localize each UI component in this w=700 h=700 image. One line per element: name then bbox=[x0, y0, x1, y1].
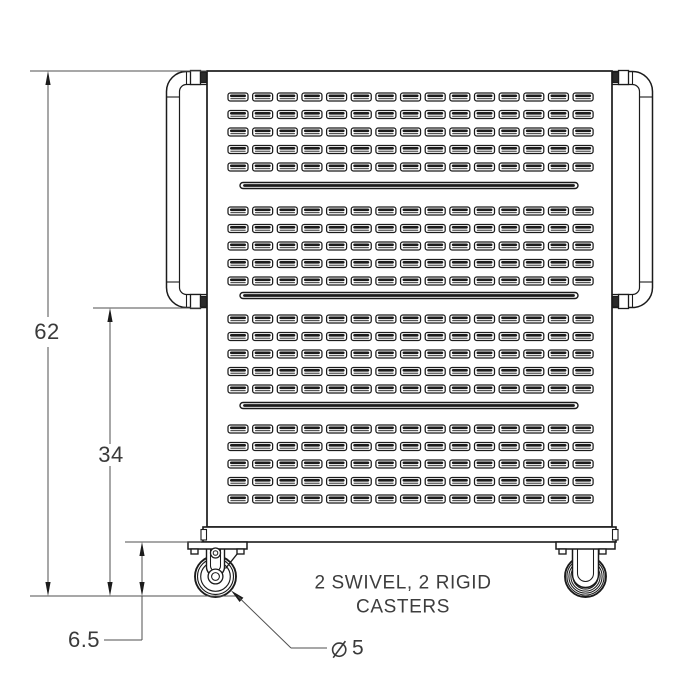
caster-note-line2: CASTERS bbox=[356, 598, 450, 617]
overall-height-dimension-label: 62 bbox=[32, 321, 61, 343]
caster-diameter-value: 5 bbox=[352, 638, 364, 659]
diameter-symbol-icon bbox=[331, 637, 348, 660]
caster-height-dimension-label: 6.5 bbox=[66, 629, 102, 651]
technical-drawing-canvas: 62 34 6.5 5 2 SWIVEL, 2 RIGID CASTERS bbox=[0, 0, 700, 700]
cart-panel bbox=[201, 71, 618, 542]
right-rigid-caster bbox=[556, 542, 615, 597]
left-swivel-caster bbox=[188, 542, 247, 597]
cart-line-drawing bbox=[0, 0, 700, 700]
right-handle bbox=[612, 71, 653, 309]
caster-diameter-callout: 5 bbox=[331, 637, 364, 660]
cart-front-view-drawing bbox=[0, 0, 700, 700]
left-handle bbox=[167, 71, 208, 309]
handle-height-dimension-label: 34 bbox=[96, 444, 125, 466]
caster-note-line1: 2 SWIVEL, 2 RIGID bbox=[314, 574, 491, 593]
